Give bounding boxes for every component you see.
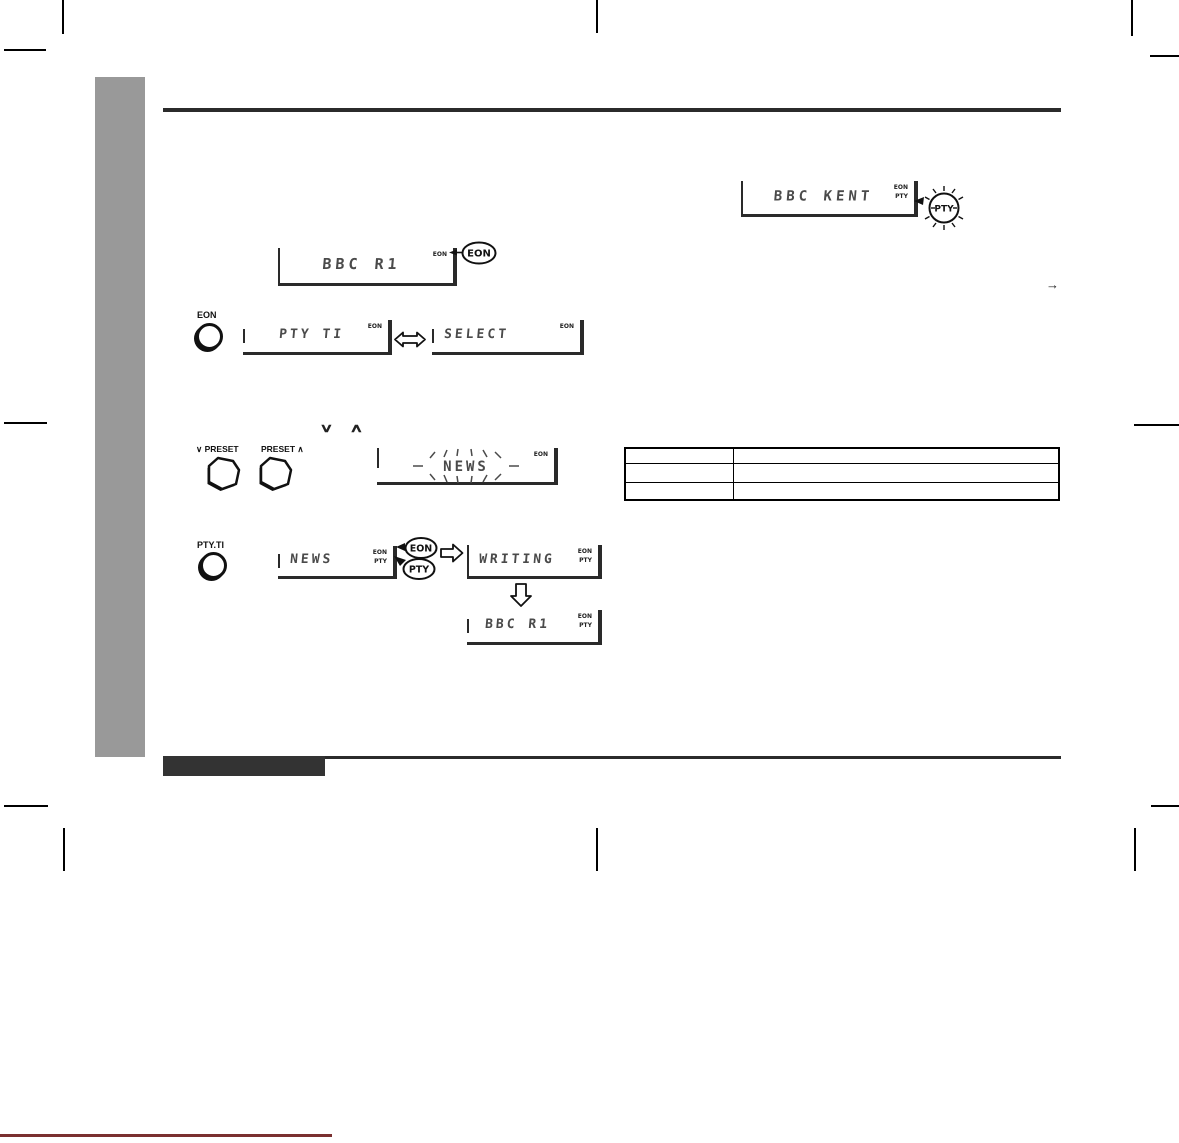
- preset-up-button: [255, 455, 295, 493]
- table-row: [626, 449, 1058, 464]
- table-cell: [734, 464, 1058, 482]
- eon-indicator: EON: [560, 322, 574, 331]
- crop-mark: [596, 828, 598, 871]
- balloon-tail-icon: [914, 197, 924, 205]
- lcd-display-result-station: BBC R1 EON PTY: [467, 610, 602, 645]
- pty-indicator: PTY: [578, 556, 592, 565]
- lcd-mode-text: PTY TI: [242, 327, 380, 342]
- crop-mark: [4, 805, 48, 807]
- table-cell: [626, 464, 734, 482]
- lcd-indicators: EON PTY: [894, 183, 908, 201]
- eon-indicator: EON: [894, 183, 908, 192]
- crop-mark: [1131, 0, 1133, 36]
- pty-ti-button-label: PTY.TI: [197, 540, 224, 550]
- crop-mark: [596, 0, 598, 33]
- balloon-label: EON: [410, 544, 433, 555]
- eon-indicator: EON: [534, 450, 548, 459]
- balloon-label: PTY: [409, 565, 429, 576]
- lcd-indicators: EON PTY: [373, 548, 387, 566]
- manual-page: BBC R1 EON EON BBC KENT EON PTY PTY → EO…: [0, 0, 1179, 1143]
- table-cell: [734, 449, 1058, 463]
- eon-indicator: EON: [433, 250, 447, 259]
- lcd-station-text: BBC KENT: [740, 188, 906, 204]
- preset-down-button: [203, 455, 243, 493]
- crop-mark: [62, 0, 64, 34]
- table-row: [626, 483, 1058, 499]
- swap-arrow-icon: [394, 331, 426, 348]
- lcd-pty-text: NEWS: [443, 459, 489, 475]
- crop-mark: [1151, 805, 1179, 807]
- chapter-sidebar-band: [95, 77, 145, 757]
- lcd-display-tuned-station: BBC R1 EON: [278, 248, 457, 286]
- pty-callout-balloon: PTY: [393, 556, 437, 580]
- lcd-indicators: EON: [534, 450, 548, 459]
- table-cell: [626, 483, 734, 499]
- lcd-mode-text: SELECT: [431, 327, 580, 342]
- eon-indicator: EON: [368, 322, 382, 331]
- table-cell: [734, 483, 1058, 499]
- lcd-display-pty-station: BBC KENT EON PTY: [741, 181, 918, 217]
- balloon-label: EON: [467, 249, 491, 260]
- eon-button: [196, 323, 223, 350]
- chevron-down-icon: ∨: [319, 421, 333, 435]
- pty-indicator: PTY: [578, 621, 592, 630]
- footer-heading-bar: [163, 756, 325, 776]
- lcd-indicators: EON PTY: [578, 612, 592, 630]
- balloon-tail-icon: [449, 250, 457, 256]
- down-arrow-icon: [510, 583, 532, 607]
- lcd-display-pty-blinking: NEWS EON: [377, 448, 558, 485]
- lcd-indicators: EON: [433, 250, 447, 259]
- section-top-rule: [163, 108, 1061, 112]
- crop-mark: [4, 49, 46, 51]
- eon-button-label: EON: [197, 310, 217, 320]
- page-edge-line: [0, 1134, 332, 1137]
- lcd-left-edge: [377, 448, 379, 468]
- chevron-up-icon: ∧: [349, 421, 363, 435]
- crop-mark: [1134, 424, 1179, 426]
- table-row: [626, 464, 1058, 483]
- next-arrow-icon: [440, 543, 464, 563]
- pty-ti-button: [200, 552, 227, 579]
- pty-indicator: PTY: [894, 192, 908, 201]
- balloon-label: PTY: [934, 205, 954, 215]
- lcd-display-pty-ti: PTY TI EON: [243, 320, 392, 355]
- chevron-up-icon: ∧: [297, 444, 303, 454]
- preset-up-label: PRESET ∧: [261, 444, 304, 455]
- eon-indicator: EON: [373, 548, 387, 557]
- pty-reference-table: [624, 447, 1060, 501]
- crop-mark: [4, 422, 47, 424]
- lcd-display-select: SELECT EON: [432, 320, 584, 355]
- eon-indicator: EON: [578, 547, 592, 556]
- lcd-indicators: EON: [560, 322, 574, 331]
- pty-indicator: PTY: [373, 557, 387, 566]
- crop-mark: [63, 828, 65, 871]
- continue-arrow-icon: →: [1046, 277, 1059, 292]
- lcd-display-news: NEWS EON PTY: [278, 546, 397, 579]
- pty-blinking-balloon: PTY: [914, 184, 970, 232]
- lcd-station-text: BBC R1: [277, 255, 446, 273]
- preset-down-label: ∨ PRESET: [196, 444, 239, 455]
- lcd-display-writing: WRITING EON PTY: [467, 545, 602, 579]
- eon-indicator: EON: [578, 612, 592, 621]
- table-cell: [626, 449, 734, 463]
- crop-mark: [1150, 55, 1179, 57]
- balloon-tail-icon: [396, 543, 405, 551]
- lcd-indicators: EON: [368, 322, 382, 331]
- crop-mark: [1134, 828, 1136, 871]
- chevron-down-icon: ∨: [196, 444, 202, 454]
- blinking-news-graphic: NEWS: [391, 449, 541, 483]
- lcd-indicators: EON PTY: [578, 547, 592, 565]
- eon-callout-balloon: EON: [449, 240, 497, 266]
